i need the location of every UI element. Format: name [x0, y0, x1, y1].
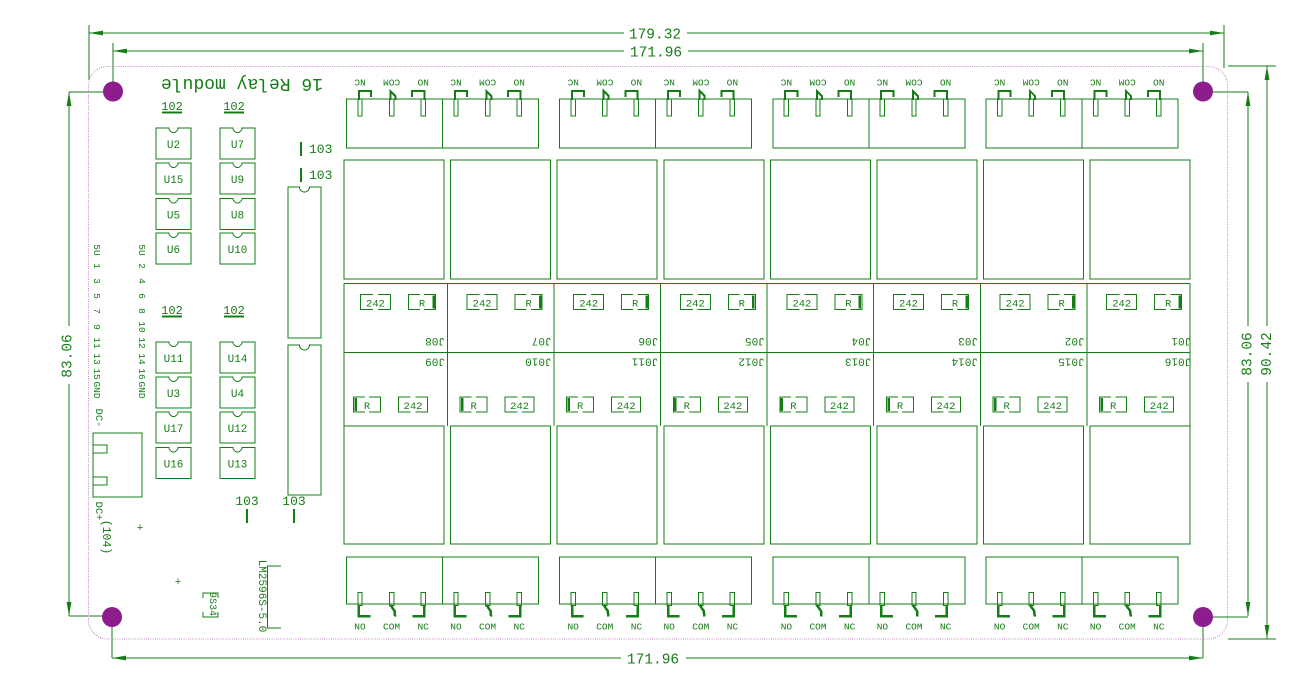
svg-text:U2: U2: [167, 140, 180, 152]
svg-text:COM: COM: [1022, 77, 1039, 88]
svg-text:242: 242: [937, 401, 956, 413]
svg-text:R: R: [952, 299, 959, 311]
svg-text:R: R: [897, 401, 904, 413]
svg-text:NO: NO: [663, 622, 675, 633]
svg-text:242: 242: [686, 299, 705, 311]
svg-text:COM: COM: [383, 622, 400, 633]
svg-text:U8: U8: [231, 211, 244, 223]
svg-text:COM: COM: [809, 77, 826, 88]
svg-text:242: 242: [830, 401, 849, 413]
svg-text:U11: U11: [164, 354, 184, 366]
svg-text:R: R: [1110, 401, 1117, 413]
svg-text:12: 12: [136, 337, 147, 349]
svg-text:NC: NC: [844, 622, 856, 633]
svg-text:14: 14: [136, 353, 147, 365]
svg-text:J012: J012: [738, 355, 764, 367]
svg-text:J05: J05: [745, 334, 765, 346]
svg-text:NO: NO: [1057, 77, 1069, 88]
svg-text:15: 15: [91, 368, 102, 380]
svg-text:DC-: DC-: [92, 409, 104, 428]
svg-text:R: R: [419, 299, 426, 311]
svg-text:U5: U5: [167, 211, 180, 223]
svg-text:NC: NC: [780, 77, 792, 88]
svg-text:R: R: [1003, 401, 1010, 413]
svg-text:83.06: 83.06: [61, 334, 77, 378]
svg-text:R: R: [470, 401, 477, 413]
svg-text:242: 242: [510, 401, 529, 413]
svg-text:J010: J010: [525, 355, 551, 367]
svg-text:9S34: 9S34: [206, 592, 217, 616]
svg-text:NO: NO: [1153, 77, 1165, 88]
svg-text:242: 242: [899, 299, 918, 311]
svg-text:NC: NC: [1090, 77, 1102, 88]
svg-text:8: 8: [136, 308, 147, 314]
svg-text:NO: NO: [630, 77, 642, 88]
svg-text:NO: NO: [877, 622, 889, 633]
svg-text:NO: NO: [417, 77, 429, 88]
svg-text:J013: J013: [845, 355, 871, 367]
svg-text:NC: NC: [1153, 622, 1165, 633]
svg-text:7: 7: [91, 308, 102, 314]
svg-text:242: 242: [473, 299, 492, 311]
svg-text:COM: COM: [596, 622, 613, 633]
svg-text:NC: NC: [1057, 622, 1069, 633]
svg-text:R: R: [364, 401, 371, 413]
svg-text:U9: U9: [231, 175, 244, 187]
svg-text:R: R: [1165, 299, 1172, 311]
svg-text:U16: U16: [164, 460, 184, 472]
svg-text:J09: J09: [425, 355, 445, 367]
svg-text:3: 3: [91, 278, 102, 284]
svg-text:U14: U14: [228, 354, 248, 366]
svg-text:242: 242: [579, 299, 598, 311]
svg-text:16: 16: [136, 368, 147, 380]
svg-text:J02: J02: [1065, 334, 1085, 346]
svg-text:103: 103: [282, 494, 305, 509]
svg-text:NO: NO: [994, 622, 1006, 633]
svg-text:J07: J07: [532, 334, 552, 346]
svg-text:J014: J014: [951, 355, 978, 367]
svg-text:COM: COM: [1118, 77, 1135, 88]
svg-text:R: R: [632, 299, 639, 311]
svg-text:COM: COM: [1119, 622, 1136, 633]
svg-text:9: 9: [91, 324, 102, 330]
svg-text:NC: NC: [663, 77, 675, 88]
svg-text:NO: NO: [354, 622, 366, 633]
svg-text:J08: J08: [425, 334, 445, 346]
svg-text:NC: NC: [876, 77, 888, 88]
svg-text:179.32: 179.32: [629, 28, 681, 44]
svg-text:242: 242: [366, 299, 385, 311]
svg-text:242: 242: [1006, 299, 1025, 311]
svg-text:NC: NC: [417, 622, 429, 633]
svg-text:J04: J04: [851, 334, 871, 346]
svg-text:5U: 5U: [91, 244, 102, 256]
svg-text:U3: U3: [167, 389, 180, 401]
svg-text:R: R: [790, 401, 797, 413]
svg-text:J011: J011: [631, 355, 658, 367]
svg-text:GND: GND: [136, 381, 147, 398]
svg-text:NC: NC: [727, 622, 739, 633]
svg-text:11: 11: [91, 337, 102, 349]
svg-text:U6: U6: [167, 245, 180, 257]
svg-text:(104): (104): [99, 520, 112, 555]
svg-text:J01: J01: [1171, 334, 1191, 346]
svg-text:R: R: [845, 299, 852, 311]
svg-text:U7: U7: [231, 140, 244, 152]
svg-text:J03: J03: [958, 334, 978, 346]
svg-text:83.06: 83.06: [1241, 332, 1257, 376]
svg-text:NC: NC: [940, 622, 952, 633]
svg-text:U17: U17: [164, 424, 184, 436]
svg-text:COM: COM: [479, 622, 496, 633]
svg-text:242: 242: [1043, 401, 1062, 413]
svg-text:COM: COM: [479, 77, 496, 88]
svg-text:242: 242: [617, 401, 636, 413]
svg-text:COM: COM: [692, 622, 709, 633]
svg-text:U12: U12: [228, 424, 248, 436]
svg-text:NC: NC: [450, 77, 462, 88]
svg-text:J015: J015: [1058, 355, 1084, 367]
svg-text:COM: COM: [692, 77, 709, 88]
svg-text:NO: NO: [450, 622, 462, 633]
svg-text:90.42: 90.42: [1260, 332, 1276, 376]
svg-text:COM: COM: [383, 77, 400, 88]
svg-text:103: 103: [309, 142, 332, 157]
svg-text:R: R: [684, 401, 691, 413]
svg-text:NO: NO: [513, 77, 525, 88]
svg-text:COM: COM: [1023, 622, 1040, 633]
svg-text:5: 5: [91, 293, 102, 299]
svg-text:242: 242: [1150, 401, 1169, 413]
svg-text:COM: COM: [809, 622, 826, 633]
svg-text:GND: GND: [91, 381, 102, 398]
svg-text:U4: U4: [231, 389, 245, 401]
svg-text:DC+: DC+: [92, 502, 104, 521]
svg-text:242: 242: [723, 401, 742, 413]
svg-text:COM: COM: [905, 622, 922, 633]
svg-text:+: +: [137, 523, 144, 535]
svg-text:103: 103: [235, 494, 258, 509]
svg-text:NC: NC: [354, 77, 366, 88]
svg-text:NO: NO: [726, 77, 738, 88]
svg-text:U15: U15: [164, 175, 184, 187]
svg-text:5U: 5U: [136, 244, 147, 256]
svg-text:NO: NO: [567, 622, 579, 633]
svg-text:NO: NO: [781, 622, 793, 633]
svg-text:NC: NC: [513, 622, 525, 633]
svg-text:NC: NC: [631, 622, 643, 633]
svg-text:242: 242: [404, 401, 423, 413]
svg-text:4: 4: [136, 278, 147, 284]
svg-text:NO: NO: [940, 77, 952, 88]
svg-text:13: 13: [91, 353, 102, 365]
svg-text:COM: COM: [596, 77, 613, 88]
svg-text:U10: U10: [228, 245, 248, 257]
svg-text:171.96: 171.96: [627, 653, 679, 669]
svg-text:NO: NO: [1090, 622, 1102, 633]
svg-text:R: R: [577, 401, 584, 413]
svg-text:J016: J016: [1165, 355, 1191, 367]
svg-text:103: 103: [309, 168, 332, 183]
svg-text:NC: NC: [567, 77, 579, 88]
svg-text:NO: NO: [844, 77, 856, 88]
svg-text:R: R: [1058, 299, 1065, 311]
svg-text:J06: J06: [638, 334, 658, 346]
svg-text:LM2596S-5.0: LM2596S-5.0: [255, 560, 267, 633]
svg-text:242: 242: [1112, 299, 1131, 311]
svg-text:R: R: [525, 299, 532, 311]
svg-text:242: 242: [792, 299, 811, 311]
svg-text:171.96: 171.96: [630, 46, 682, 62]
svg-text:U13: U13: [228, 460, 248, 472]
svg-text:1: 1: [91, 263, 102, 269]
svg-text:R: R: [739, 299, 746, 311]
svg-text:+: +: [175, 577, 182, 589]
svg-text:16 Relay module: 16 Relay module: [161, 73, 323, 93]
svg-text:COM: COM: [905, 77, 922, 88]
svg-text:10: 10: [136, 321, 147, 333]
svg-text:6: 6: [136, 293, 147, 299]
svg-text:NC: NC: [994, 77, 1006, 88]
svg-text:2: 2: [136, 263, 147, 269]
